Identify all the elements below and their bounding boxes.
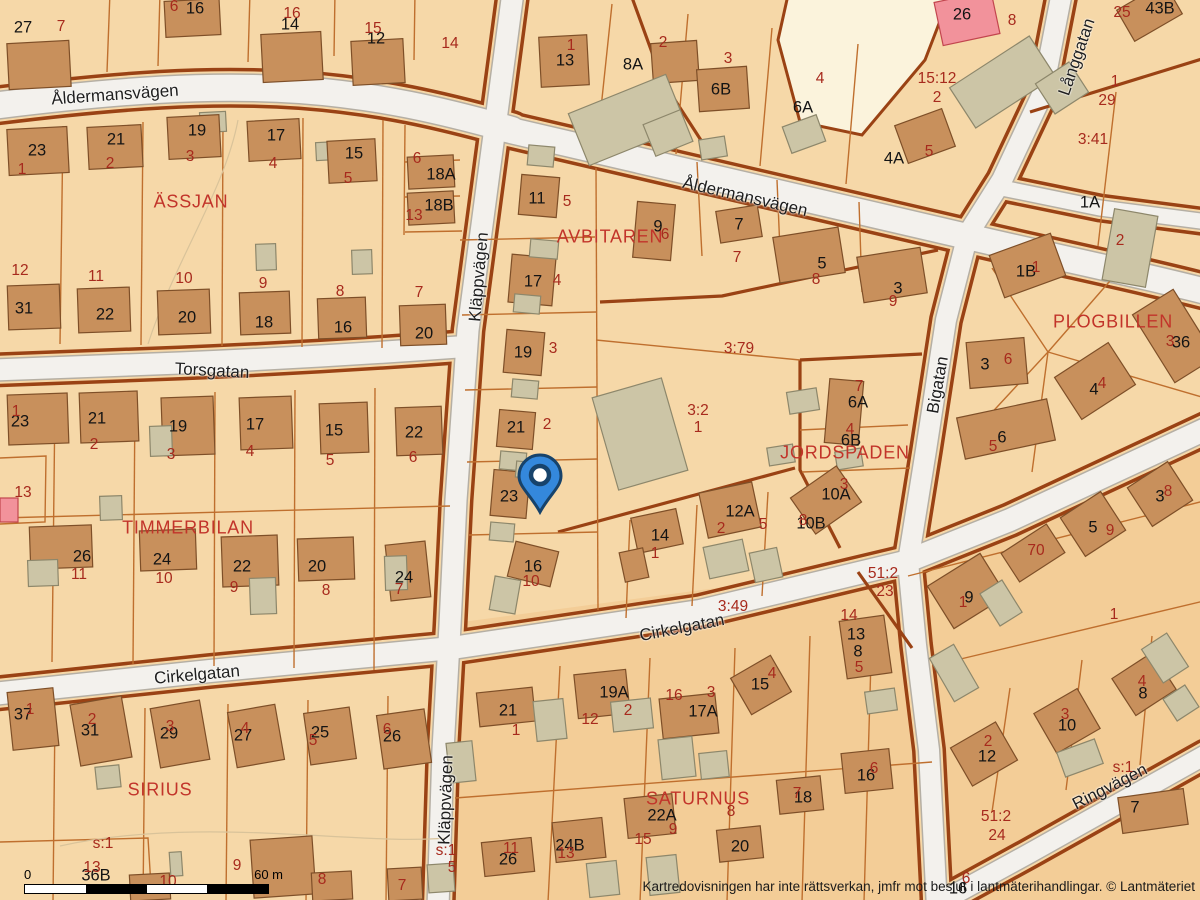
building: [297, 537, 354, 581]
outbuilding: [611, 698, 654, 732]
map-attribution: Kartredovisningen har inte rättsverkan, …: [643, 879, 1195, 894]
building: [70, 696, 132, 766]
outbuilding: [249, 578, 276, 615]
building: [624, 794, 676, 839]
building: [376, 709, 431, 769]
building: [167, 115, 221, 160]
map-canvas[interactable]: [0, 0, 1200, 900]
scale-bar-segment: [147, 885, 208, 893]
outbuilding: [352, 250, 373, 275]
outbuilding: [658, 736, 696, 779]
building: [79, 391, 139, 443]
outbuilding: [533, 699, 567, 742]
parcel-line: [404, 125, 405, 235]
building: [839, 615, 892, 679]
building: [387, 867, 423, 900]
building: [247, 119, 301, 162]
parcel-line: [405, 231, 462, 232]
building: [481, 837, 534, 876]
building: [399, 304, 446, 346]
building: [716, 826, 763, 862]
building: [239, 396, 293, 450]
building: [304, 707, 357, 765]
building: [503, 329, 545, 375]
building: [317, 297, 366, 339]
outbuilding: [699, 136, 728, 160]
building: [395, 406, 443, 456]
outbuilding: [95, 765, 121, 789]
building: [659, 693, 719, 739]
outbuilding: [529, 239, 558, 259]
building: [518, 174, 559, 217]
building: [966, 338, 1028, 389]
outbuilding: [489, 576, 521, 614]
building: [228, 704, 285, 767]
building: [319, 402, 369, 454]
building: [139, 529, 196, 571]
building: [716, 205, 762, 243]
building: [7, 688, 59, 750]
outbuilding: [427, 863, 455, 893]
outbuilding: [699, 751, 730, 780]
building: [496, 410, 535, 450]
outbuilding: [865, 688, 898, 714]
building: [857, 247, 927, 302]
outbuilding: [149, 426, 172, 457]
outbuilding: [511, 379, 538, 399]
outbuilding: [749, 547, 783, 582]
scale-bar-segment: [25, 885, 86, 893]
building: [407, 191, 455, 225]
outbuilding: [384, 556, 407, 591]
scale-start-label: 0: [24, 867, 31, 882]
outbuilding: [586, 861, 619, 898]
building: [7, 126, 69, 175]
building: [311, 871, 352, 900]
outbuilding: [513, 294, 540, 314]
building: [7, 284, 61, 330]
building: [7, 393, 69, 445]
outbuilding: [786, 388, 819, 414]
outbuilding: [527, 145, 555, 167]
building: [87, 125, 143, 170]
outbuilding: [100, 496, 123, 521]
outbuilding: [256, 244, 277, 271]
building: [776, 776, 823, 814]
building: [407, 155, 455, 189]
building: [476, 687, 535, 727]
building: [261, 31, 323, 82]
building: [150, 700, 210, 768]
building: [552, 817, 606, 862]
building: [633, 201, 676, 260]
building: [327, 139, 377, 183]
pink-building: [0, 498, 18, 522]
building: [539, 35, 590, 87]
building: [773, 227, 845, 283]
outbuilding: [169, 852, 183, 877]
outbuilding: [835, 448, 863, 470]
outbuilding: [489, 522, 514, 542]
building: [239, 291, 290, 335]
scale-bar-segment: [207, 885, 268, 893]
scale-bar-segment: [86, 885, 147, 893]
building: [351, 39, 405, 86]
building: [7, 40, 71, 89]
outbuilding: [28, 559, 59, 586]
scale-bar: [24, 884, 269, 894]
building: [841, 749, 893, 794]
outbuilding: [767, 444, 795, 466]
parcel-line: [222, 120, 223, 346]
scale-end-label: 60 m: [254, 867, 283, 882]
map-viewport[interactable]: ÅldermansvägenÅldermansvägenTorsgatanCir…: [0, 0, 1200, 900]
building: [77, 287, 131, 333]
building: [824, 379, 863, 446]
building: [164, 0, 221, 37]
building: [697, 66, 750, 111]
building: [157, 289, 211, 335]
outbuilding: [446, 741, 476, 783]
